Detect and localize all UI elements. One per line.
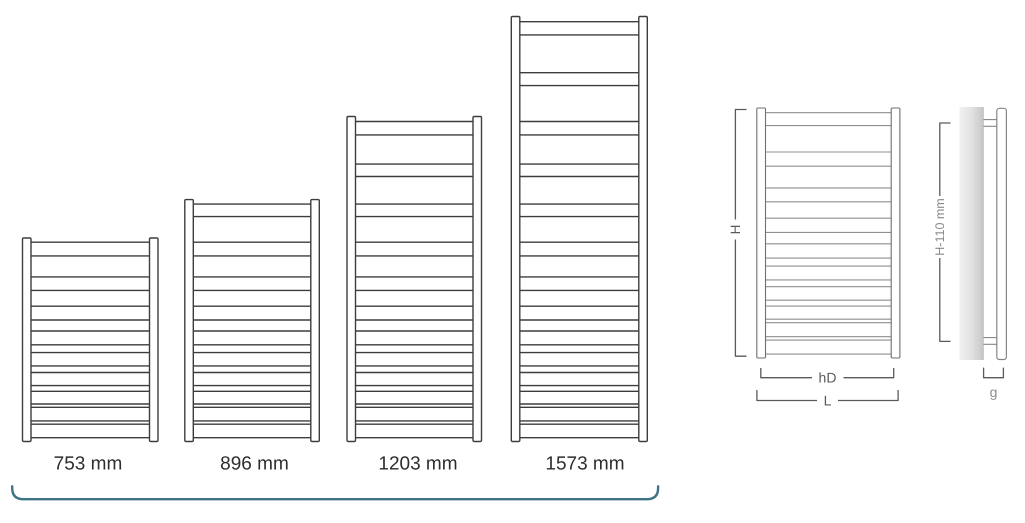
- svg-text:896 mm: 896 mm: [220, 454, 289, 475]
- svg-text:L: L: [824, 392, 832, 408]
- svg-text:1203 mm: 1203 mm: [378, 454, 457, 475]
- svg-text:g: g: [990, 384, 998, 400]
- svg-text:H: H: [728, 225, 743, 235]
- svg-text:753 mm: 753 mm: [54, 454, 123, 475]
- svg-text:H-110 mm: H-110 mm: [933, 198, 947, 255]
- svg-text:hD: hD: [819, 369, 837, 385]
- svg-text:1573 mm: 1573 mm: [545, 454, 624, 475]
